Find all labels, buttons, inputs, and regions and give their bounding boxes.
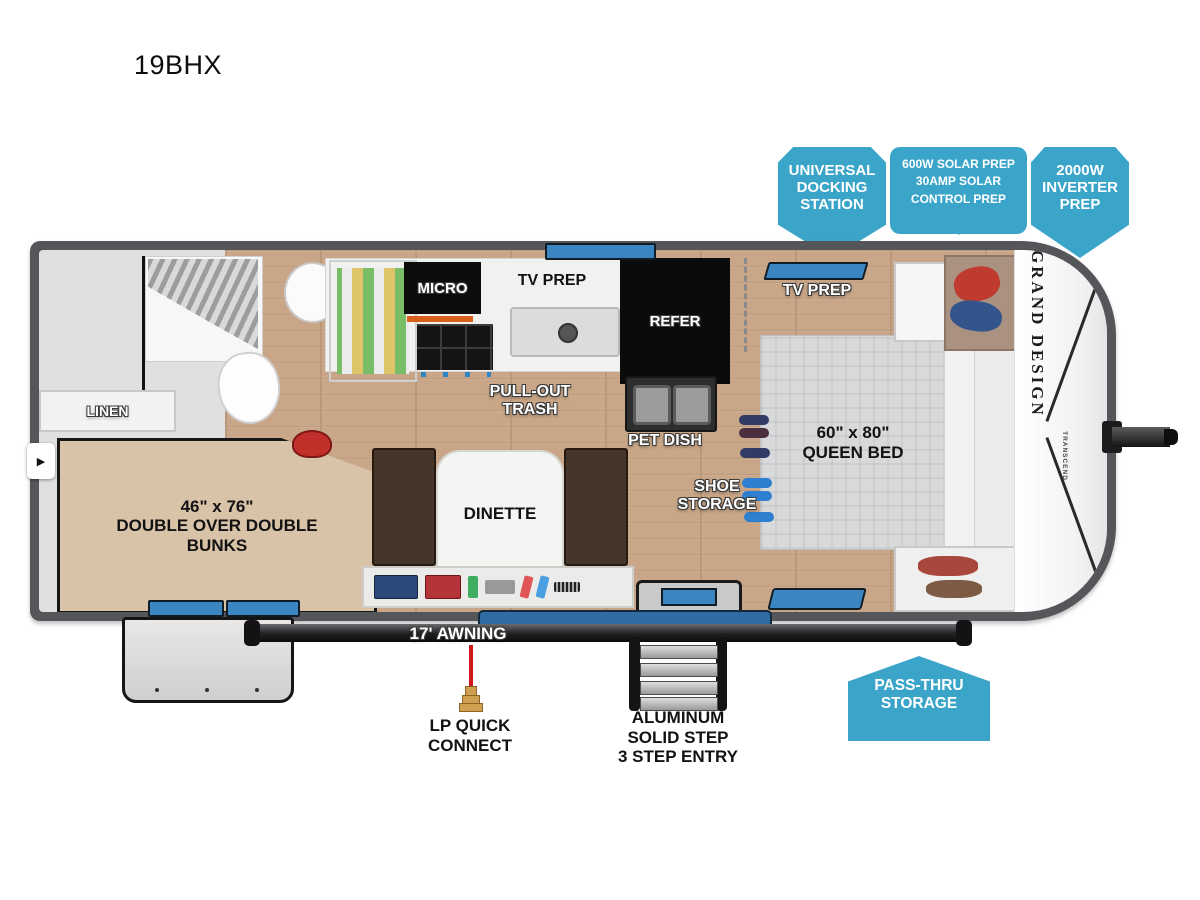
bunks-label: 46" x 76" DOUBLE OVER DOUBLE BUNKS [116, 497, 317, 556]
clothing-icon [951, 263, 1003, 306]
dinette-table: DINETTE [436, 450, 564, 578]
pet-bowl-icon [673, 385, 711, 425]
logo-chevron-icon [1045, 250, 1107, 422]
wardrobe-bottom [894, 546, 1018, 612]
dinette-bench [564, 448, 628, 566]
towel-bar-icon [407, 316, 473, 322]
hitch-ball-mount-icon [1164, 429, 1178, 445]
dinette-bench [372, 448, 436, 566]
stove-knobs-icon [421, 372, 491, 377]
microwave: MICRO [404, 262, 481, 314]
game-box-icon [374, 575, 418, 599]
shoe-storage-label: SHOE STORAGE [637, 478, 797, 515]
clothing-icon [948, 298, 1004, 335]
bunk-beds: 46" x 76" DOUBLE OVER DOUBLE BUNKS [57, 438, 377, 612]
drawer-icon [485, 580, 515, 594]
awning-roller [250, 624, 968, 642]
bedroom-tv-prep-mount [763, 262, 868, 280]
callout-solar-prep: 600W SOLAR PREP 30AMP SOLAR CONTROL PREP [890, 147, 1027, 234]
linen-label: LINEN [87, 403, 129, 419]
shoes-icon [740, 448, 770, 458]
shoes-icon [739, 415, 769, 425]
game-box-icon [554, 582, 580, 592]
refer-label: REFER [650, 313, 701, 330]
lp-connect-pointer-line [469, 645, 473, 687]
awning-end-cap-icon [956, 620, 972, 646]
lp-quick-connect-icon [459, 686, 483, 712]
entry-mat-icon [661, 588, 717, 606]
bed-pillows [944, 335, 976, 550]
clothing-icon [918, 556, 978, 576]
trailer-body-outline: LINEN 46" x 76" DOUBLE OVER DOUBLE BUNKS… [30, 241, 1116, 621]
awning-end-cap-icon [244, 620, 260, 646]
queen-bed-label: 60" x 80" QUEEN BED [802, 423, 903, 462]
callout-inverter-prep: 2000W INVERTER PREP [1031, 147, 1129, 258]
lp-quick-connect-label: LP QUICK CONNECT [388, 716, 552, 755]
logo-chevron-icon [1045, 437, 1107, 612]
bunk-window [226, 600, 300, 617]
pull-out-trash-label: PULL-OUT TRASH [448, 383, 612, 420]
bedroom-rug-icon [767, 588, 866, 610]
entry-step-well [636, 580, 742, 612]
trailer-interior: LINEN 46" x 76" DOUBLE OVER DOUBLE BUNKS… [39, 250, 1107, 612]
game-box-icon [468, 576, 478, 598]
floorplan-page: 19BHX UNIVERSAL DOCKING STATION 600W SOL… [0, 0, 1200, 900]
shower-curtain-icon [148, 259, 258, 351]
brand-logo-text: GRAND DESIGN [1027, 250, 1047, 612]
kitchen-sink [510, 307, 620, 357]
kitchen-window [545, 243, 656, 260]
closet-divider-icon [744, 258, 747, 352]
sink-drain-icon [558, 323, 578, 343]
shower-rod-icon [142, 256, 145, 394]
bunk-window [148, 600, 224, 617]
queen-bed: 60" x 80" QUEEN BED [760, 335, 946, 550]
pet-bowl-icon [633, 385, 671, 425]
stove-icon [417, 324, 493, 370]
shower [145, 256, 263, 362]
game-box-icon [425, 575, 461, 599]
cap-decor-icon [292, 430, 332, 458]
pet-dish-tray [625, 376, 717, 432]
wardrobe-top [944, 255, 1018, 351]
hitch-tongue-icon [1112, 427, 1170, 447]
awning-label: 17' AWNING [388, 624, 528, 644]
tv-prep-kitchen-label: TV PREP [485, 272, 619, 290]
series-logo-text: TRANSCEND [1061, 431, 1068, 481]
door-marker: ▶ [27, 443, 55, 479]
linen-closet: LINEN [39, 390, 176, 432]
dinette-storage-console [362, 566, 634, 608]
callout-solar-prep-pointer [947, 223, 971, 235]
micro-label: MICRO [418, 280, 468, 297]
refrigerator: REFER [620, 258, 730, 384]
callout-pass-thru-storage: PASS-THRU STORAGE [848, 656, 990, 741]
clothing-icon [926, 580, 982, 598]
dinette-label: DINETTE [464, 504, 537, 524]
shoes-icon [739, 428, 769, 438]
entry-steps [629, 637, 727, 711]
entry-steps-label: ALUMINUM SOLID STEP 3 STEP ENTRY [592, 708, 764, 767]
overhead-cabinet [894, 262, 948, 342]
game-console-icon [519, 575, 533, 599]
tv-prep-bedroom-label: TV PREP [759, 282, 875, 300]
front-cap: GRAND DESIGN TRANSCEND [1014, 250, 1107, 612]
floorplan-model-title: 19BHX [134, 50, 222, 81]
game-console-icon [535, 575, 549, 599]
